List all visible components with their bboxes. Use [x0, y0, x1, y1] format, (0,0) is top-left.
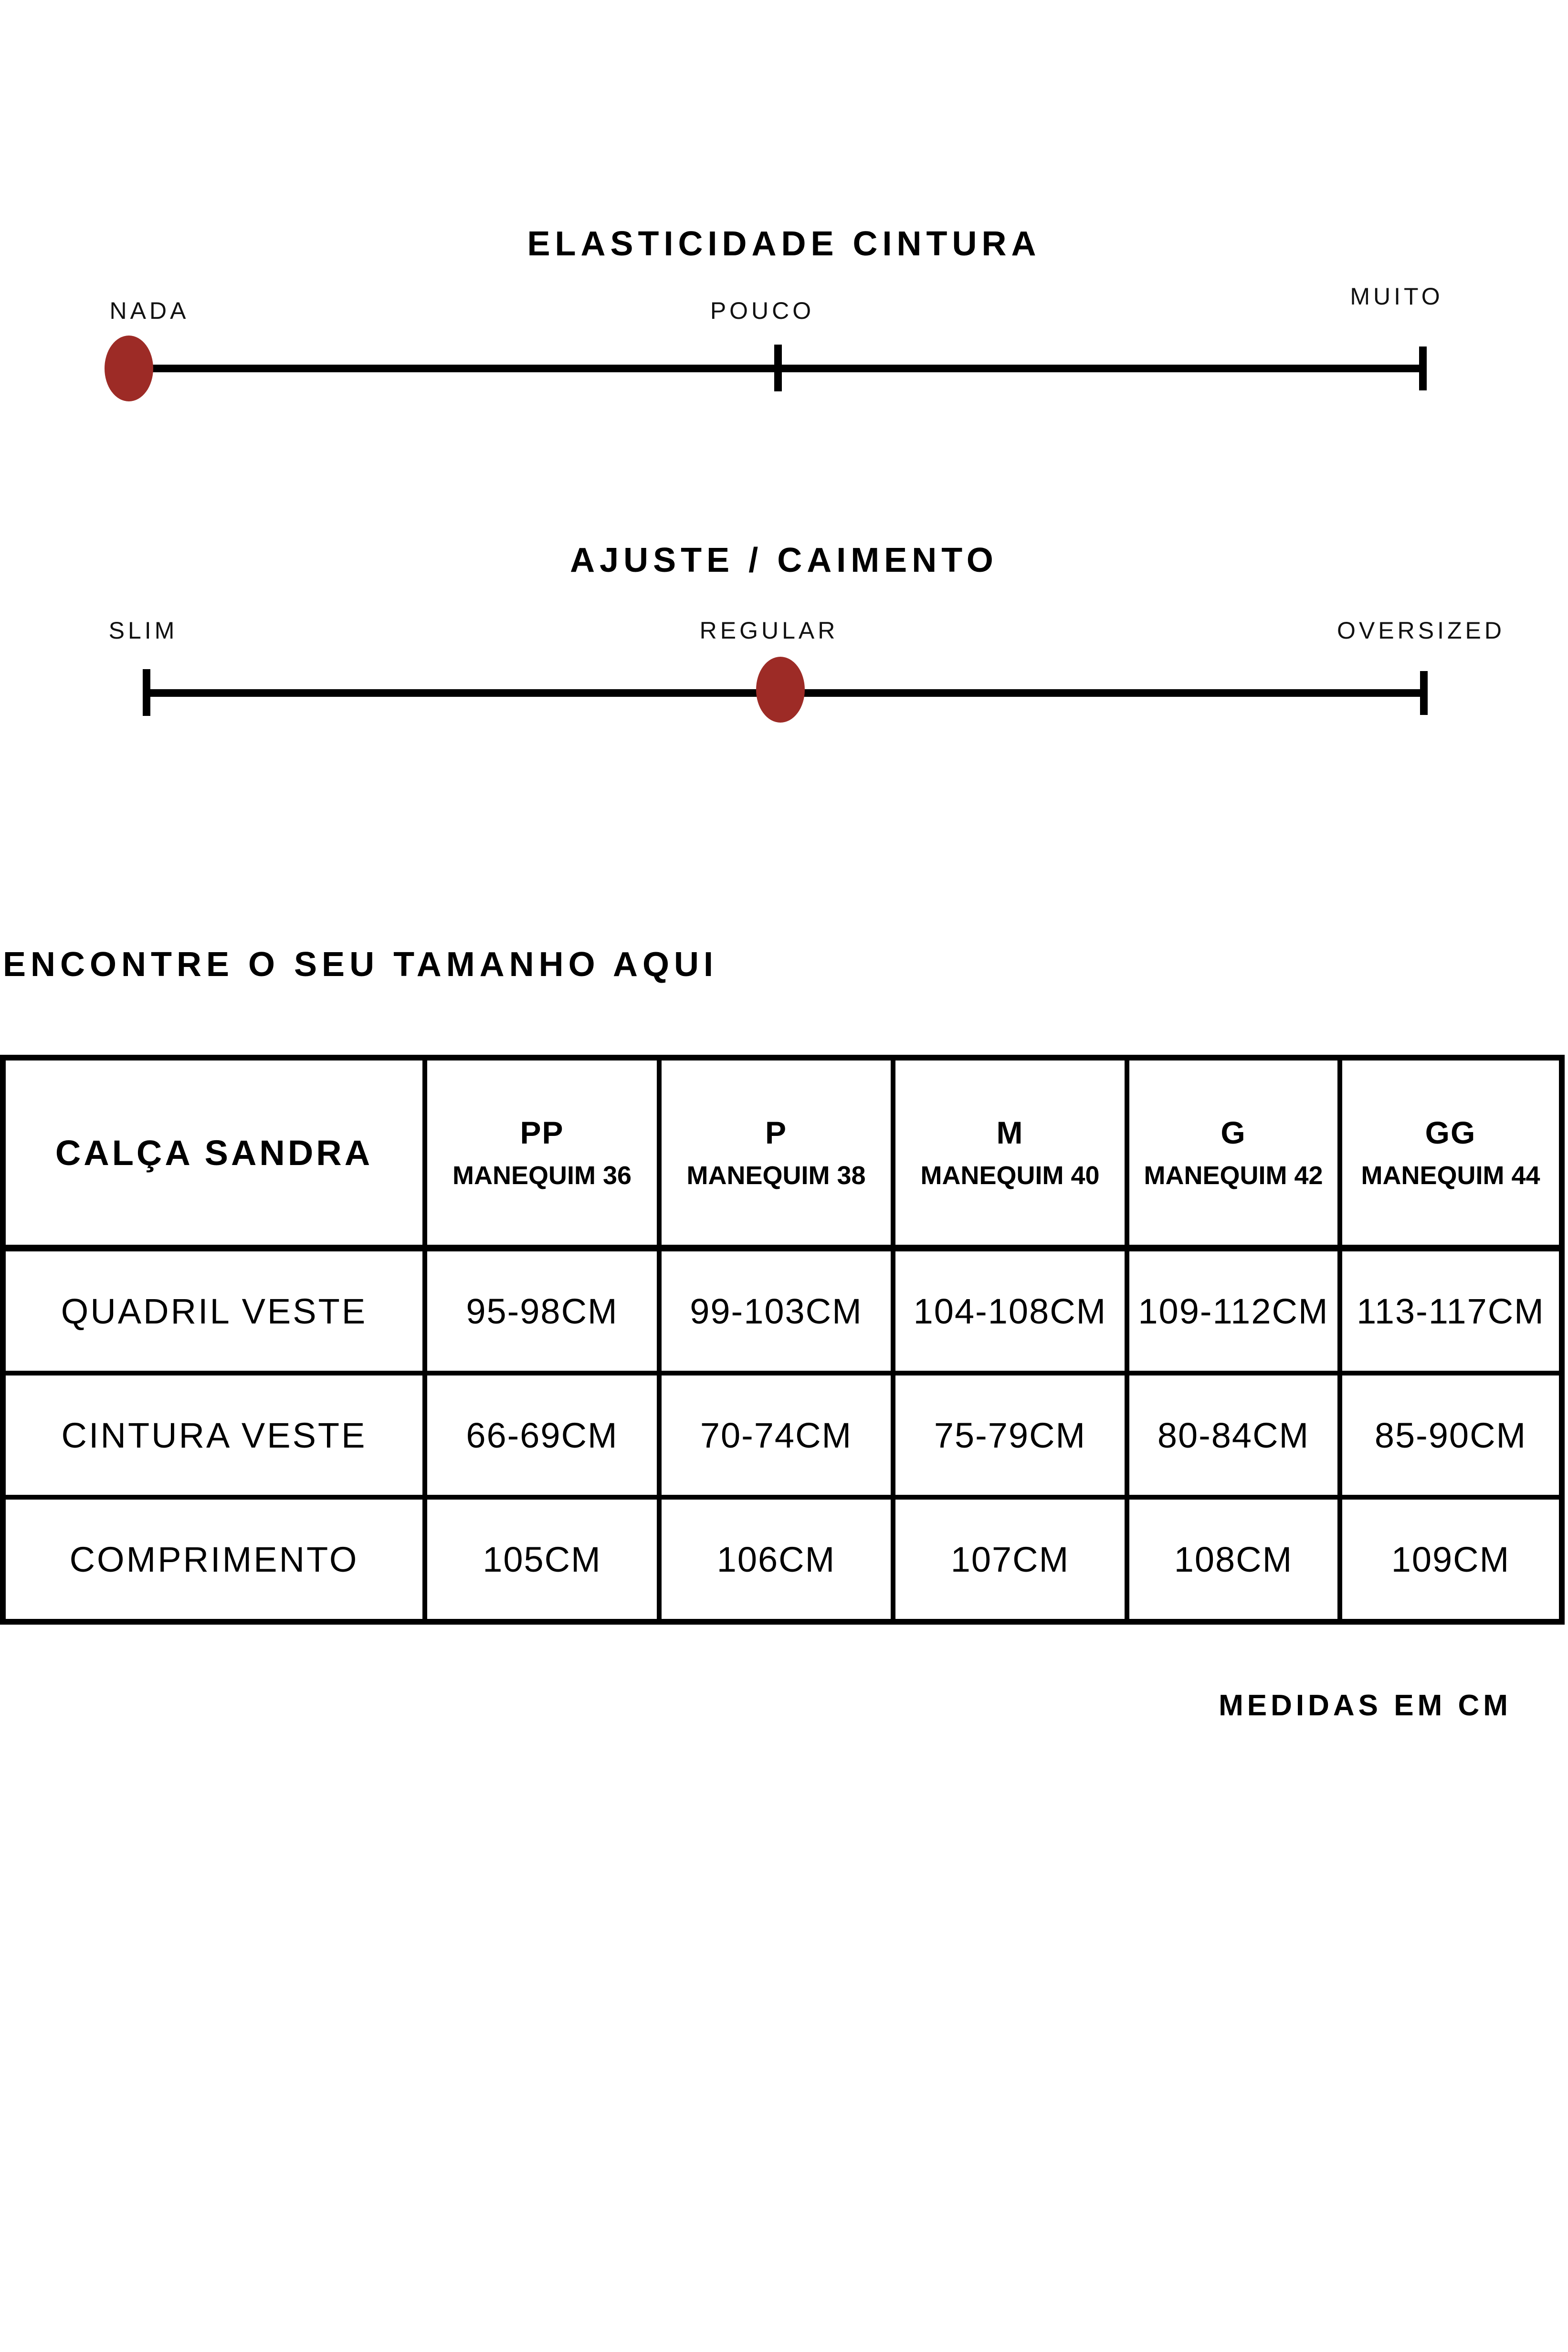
fit-slider-title: AJUSTE / CAIMENTO: [0, 541, 1568, 580]
size-guide-heading: ENCONTRE O SEU TAMANHO AQUI: [3, 945, 718, 984]
size-guide-page: ELASTICIDADE CINTURA NADA POUCO MUITO AJ…: [0, 0, 1568, 2352]
mannequin-label: MANEQUIM 36: [427, 1163, 657, 1188]
size-column-g: G MANEQUIM 42: [1127, 1058, 1340, 1248]
fit-label-left: SLIM: [109, 617, 178, 644]
size-table: CALÇA SANDRA PP MANEQUIM 36 P MANEQUIM 3…: [0, 1055, 1565, 1625]
elasticity-label-left: NADA: [110, 297, 189, 325]
measurement-value: 80-84CM: [1127, 1373, 1340, 1497]
mannequin-label: MANEQUIM 38: [662, 1163, 891, 1188]
elasticity-slider-thumb: [105, 336, 153, 401]
fit-slider-thumb: [756, 657, 805, 723]
size-letter: G: [1129, 1117, 1337, 1148]
elasticity-label-right: MUITO: [1350, 283, 1443, 310]
product-name-cell: CALÇA SANDRA: [3, 1058, 425, 1248]
measurement-value: 75-79CM: [893, 1373, 1127, 1497]
measurements-footnote: MEDIDAS EM CM: [1219, 1689, 1512, 1722]
size-letter: M: [895, 1117, 1125, 1148]
measurement-value: 113-117CM: [1340, 1248, 1562, 1373]
row-label: QUADRIL VESTE: [3, 1248, 425, 1373]
size-letter: P: [662, 1117, 891, 1148]
measurement-value: 105CM: [425, 1497, 659, 1622]
size-table-header-row: CALÇA SANDRA PP MANEQUIM 36 P MANEQUIM 3…: [3, 1058, 1562, 1248]
fit-label-right: OVERSIZED: [1337, 617, 1505, 644]
table-row-comprimento: COMPRIMENTO 105CM 106CM 107CM 108CM 109C…: [3, 1497, 1562, 1622]
table-row-cintura: CINTURA VESTE 66-69CM 70-74CM 75-79CM 80…: [3, 1373, 1562, 1497]
size-letter: PP: [427, 1117, 657, 1148]
mannequin-label: MANEQUIM 44: [1342, 1163, 1559, 1188]
measurement-value: 104-108CM: [893, 1248, 1127, 1373]
size-column-m: M MANEQUIM 40: [893, 1058, 1127, 1248]
measurement-value: 109CM: [1340, 1497, 1562, 1622]
size-column-pp: PP MANEQUIM 36: [425, 1058, 659, 1248]
size-letter: GG: [1342, 1117, 1559, 1148]
measurement-value: 109-112CM: [1127, 1248, 1340, 1373]
measurement-value: 95-98CM: [425, 1248, 659, 1373]
row-label: COMPRIMENTO: [3, 1497, 425, 1622]
measurement-value: 99-103CM: [659, 1248, 893, 1373]
measurement-value: 107CM: [893, 1497, 1127, 1622]
size-column-p: P MANEQUIM 38: [659, 1058, 893, 1248]
row-label: CINTURA VESTE: [3, 1373, 425, 1497]
measurement-value: 106CM: [659, 1497, 893, 1622]
table-row-quadril: QUADRIL VESTE 95-98CM 99-103CM 104-108CM…: [3, 1248, 1562, 1373]
measurement-value: 108CM: [1127, 1497, 1340, 1622]
measurement-value: 85-90CM: [1340, 1373, 1562, 1497]
mannequin-label: MANEQUIM 42: [1129, 1163, 1337, 1188]
elasticity-label-center: POUCO: [710, 297, 814, 325]
measurement-value: 70-74CM: [659, 1373, 893, 1497]
measurement-value: 66-69CM: [425, 1373, 659, 1497]
product-name: CALÇA SANDRA: [6, 1133, 422, 1173]
elasticity-slider-title: ELASTICIDADE CINTURA: [0, 224, 1568, 263]
size-column-gg: GG MANEQUIM 44: [1340, 1058, 1562, 1248]
mannequin-label: MANEQUIM 40: [895, 1163, 1125, 1188]
fit-label-center: REGULAR: [700, 617, 839, 644]
elasticity-end-tick: [1419, 346, 1427, 390]
elasticity-mid-tick: [774, 345, 782, 391]
fit-end-tick: [1420, 671, 1428, 715]
